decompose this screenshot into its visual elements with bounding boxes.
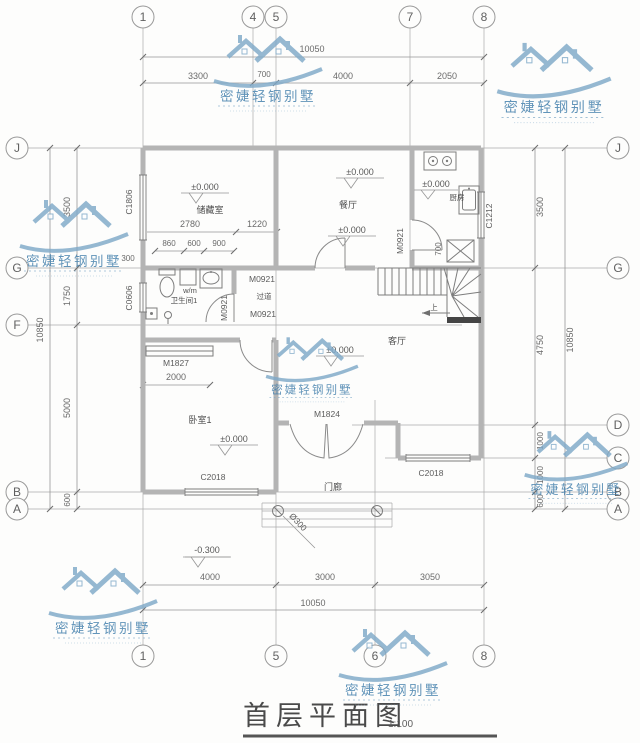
svg-text:G: G <box>613 261 622 275</box>
svg-text:G: G <box>12 261 21 275</box>
svg-text:密婕轻钢别墅: 密婕轻钢别墅 <box>345 682 441 698</box>
grid-bubble-bottom-1: 1 <box>132 645 154 667</box>
washer-label: w/m <box>182 286 197 295</box>
grid-bubble-bottom-5: 5 <box>265 645 287 667</box>
grid-bubble-top-7: 7 <box>399 6 421 28</box>
dim-bath-3: 900 <box>212 239 226 248</box>
grid-bubble-left-g: G <box>6 257 28 279</box>
room-label-hallway: 过道 <box>257 291 272 301</box>
staircase: 上 <box>378 268 481 323</box>
svg-text:B: B <box>13 485 21 499</box>
floor-drain-icon <box>146 308 157 319</box>
svg-text:D: D <box>614 418 623 432</box>
grid-bubble-right-d: D <box>607 414 629 436</box>
floor-plan-drawing: 10050 3300 700 4000 2050 4000 3000 3050 … <box>0 0 640 743</box>
room-label-kitchen: 厨房 <box>450 192 465 202</box>
grid-bubble-right-j: J <box>607 137 629 159</box>
stove-icon <box>424 152 456 170</box>
label-m0921-hall-top: M0921 <box>249 274 275 284</box>
label-m0921-kitchen: M0921 <box>395 228 405 254</box>
svg-text:F: F <box>13 318 20 332</box>
dim-bath-1: 860 <box>162 239 176 248</box>
window-c2018-living <box>406 454 470 462</box>
svg-text:J: J <box>615 141 621 155</box>
label-c1806: C1806 <box>124 189 134 214</box>
dim-bottom-2: 3000 <box>315 572 335 582</box>
dim-closet-2000: 2000 <box>166 372 186 382</box>
grid-bubble-top-4: 4 <box>242 6 264 28</box>
label-column-dia: Ø300 <box>287 511 309 533</box>
label-m0921-hall-bottom: M0921 <box>250 309 276 319</box>
door-layer <box>206 220 442 458</box>
svg-text:4: 4 <box>250 10 257 24</box>
grid-bubble-top-8: 8 <box>473 6 495 28</box>
toilet-icon <box>159 269 175 297</box>
dim-bottom-total: 10050 <box>300 598 325 608</box>
svg-text:±0.000: ±0.000 <box>346 167 373 177</box>
label-m0921-bath: M0921 <box>219 295 229 321</box>
title-text: 首层平面图 <box>243 701 408 731</box>
label-c2018-living: C2018 <box>418 468 443 478</box>
svg-text:A: A <box>13 502 21 516</box>
svg-text:J: J <box>14 141 20 155</box>
svg-text:1: 1 <box>140 649 147 663</box>
window-c2018-bedroom <box>185 488 258 496</box>
dim-top-3: 4000 <box>333 71 353 81</box>
label-m1824: M1824 <box>314 409 340 419</box>
room-label-storage: 储藏室 <box>196 204 223 215</box>
svg-text:密婕轻钢别墅: 密婕轻钢别墅 <box>55 620 151 636</box>
stair-cut-bar <box>447 317 481 323</box>
label-c2018-bedroom: C2018 <box>200 472 225 482</box>
title-scale: 1:100 <box>388 719 413 730</box>
floor-plan-page: 10050 3300 700 4000 2050 4000 3000 3050 … <box>0 0 640 743</box>
grid-bubble-right-g: G <box>607 257 629 279</box>
dim-left-3: 5000 <box>62 398 72 418</box>
dimension-lines <box>47 54 568 613</box>
opening-labels: C1806 C0606 C1212 C2018 C2018 M0921 M092… <box>124 189 494 533</box>
room-label-porch: 门廊 <box>324 481 342 492</box>
dim-right-1: 3500 <box>535 197 545 217</box>
grid-bubble-left-f: F <box>6 314 28 336</box>
kitchen-counter-icon <box>447 240 474 262</box>
dim-offset-300: 300 <box>121 254 135 263</box>
door-bedroom <box>240 340 272 372</box>
dim-right-2: 4750 <box>535 335 545 355</box>
svg-text:C: C <box>614 451 623 465</box>
level-storage: ±0.000 <box>181 182 229 203</box>
dim-top-1: 3300 <box>188 71 208 81</box>
door-m1824-double <box>290 424 363 458</box>
room-label-dining: 餐厅 <box>339 199 357 210</box>
grid-bubble-right-a: A <box>607 498 629 520</box>
svg-text:密婕轻钢别墅: 密婕轻钢别墅 <box>271 382 353 396</box>
level-dining-top: ±0.000 <box>336 167 384 188</box>
dim-right-total: 10850 <box>565 327 575 352</box>
svg-text:-0.300: -0.300 <box>194 545 220 555</box>
svg-text:7: 7 <box>407 10 414 24</box>
svg-text:±0.000: ±0.000 <box>191 182 218 192</box>
drawing-title: 首层平面图 1:100 <box>243 701 497 736</box>
svg-text:5: 5 <box>273 649 280 663</box>
grid-bubble-top-1: 1 <box>132 6 154 28</box>
dim-top-4: 2050 <box>437 71 457 81</box>
watermark-top-right: 密婕轻钢别墅 <box>497 43 610 123</box>
svg-text:密婕轻钢别墅: 密婕轻钢别墅 <box>504 99 605 116</box>
watermark-left: 密婕轻钢别墅 <box>20 200 128 276</box>
grid-bubble-bottom-8: 8 <box>473 645 495 667</box>
svg-text:±0.000: ±0.000 <box>220 434 247 444</box>
dim-top-total: 10050 <box>299 44 324 54</box>
level-bedroom: ±0.000 <box>210 434 258 455</box>
dim-bottom-3: 3050 <box>420 572 440 582</box>
svg-text:±0.000: ±0.000 <box>422 179 449 189</box>
grid-bubble-left-a: A <box>6 498 28 520</box>
watermark-bottom-center: 密婕轻钢别墅 <box>339 629 447 705</box>
svg-text:密婕轻钢别墅: 密婕轻钢别墅 <box>220 88 316 104</box>
shower-icon <box>165 312 172 325</box>
dim-left-4: 600 <box>63 493 72 507</box>
room-label-bathroom: 卫生间1 <box>171 295 198 305</box>
window-c1806 <box>139 175 147 240</box>
room-label-bedroom: 卧室1 <box>188 414 211 425</box>
dim-left-total: 10850 <box>35 317 45 342</box>
grid-bubble-top-5: 5 <box>265 6 287 28</box>
dim-storage-width: 2780 <box>180 219 200 229</box>
dim-storage-gap: 1220 <box>247 219 267 229</box>
svg-text:8: 8 <box>481 649 488 663</box>
level-outdoor: -0.300 <box>183 545 231 567</box>
svg-text:密婕轻钢别墅: 密婕轻钢别墅 <box>530 482 621 497</box>
stair-up-label: 上 <box>430 303 438 312</box>
label-c0606: C0606 <box>124 285 134 310</box>
watermark-bottom-left: 密婕轻钢别墅 <box>49 567 157 643</box>
grid-axis-lines <box>28 28 607 645</box>
svg-text:5: 5 <box>273 10 280 24</box>
dim-left-2: 1750 <box>62 286 72 306</box>
svg-text:A: A <box>614 502 622 516</box>
label-c1212: C1212 <box>484 203 494 228</box>
grid-bubble-left-j: J <box>6 137 28 159</box>
svg-text:密婕轻钢别墅: 密婕轻钢别墅 <box>26 253 122 269</box>
svg-text:±0.000: ±0.000 <box>338 225 365 235</box>
svg-text:6: 6 <box>372 649 379 663</box>
dim-bottom-1: 4000 <box>200 572 220 582</box>
level-marks: ±0.000 ±0.000 ±0.000 ±0.000 ±0.000 ±0.00… <box>181 167 458 567</box>
dim-bath-2: 600 <box>187 239 201 248</box>
bath-sink-icon <box>200 269 222 288</box>
washing-machine-icon <box>180 269 196 285</box>
svg-text:8: 8 <box>481 10 488 24</box>
room-label-living: 客厅 <box>388 335 406 346</box>
label-m1827: M1827 <box>163 358 189 368</box>
stair-up-arrow <box>422 310 430 316</box>
dim-top-2: 700 <box>257 70 271 79</box>
svg-text:1: 1 <box>140 10 147 24</box>
bedroom-closet-icon <box>146 346 213 356</box>
level-dining-mid: ±0.000 <box>328 225 376 246</box>
